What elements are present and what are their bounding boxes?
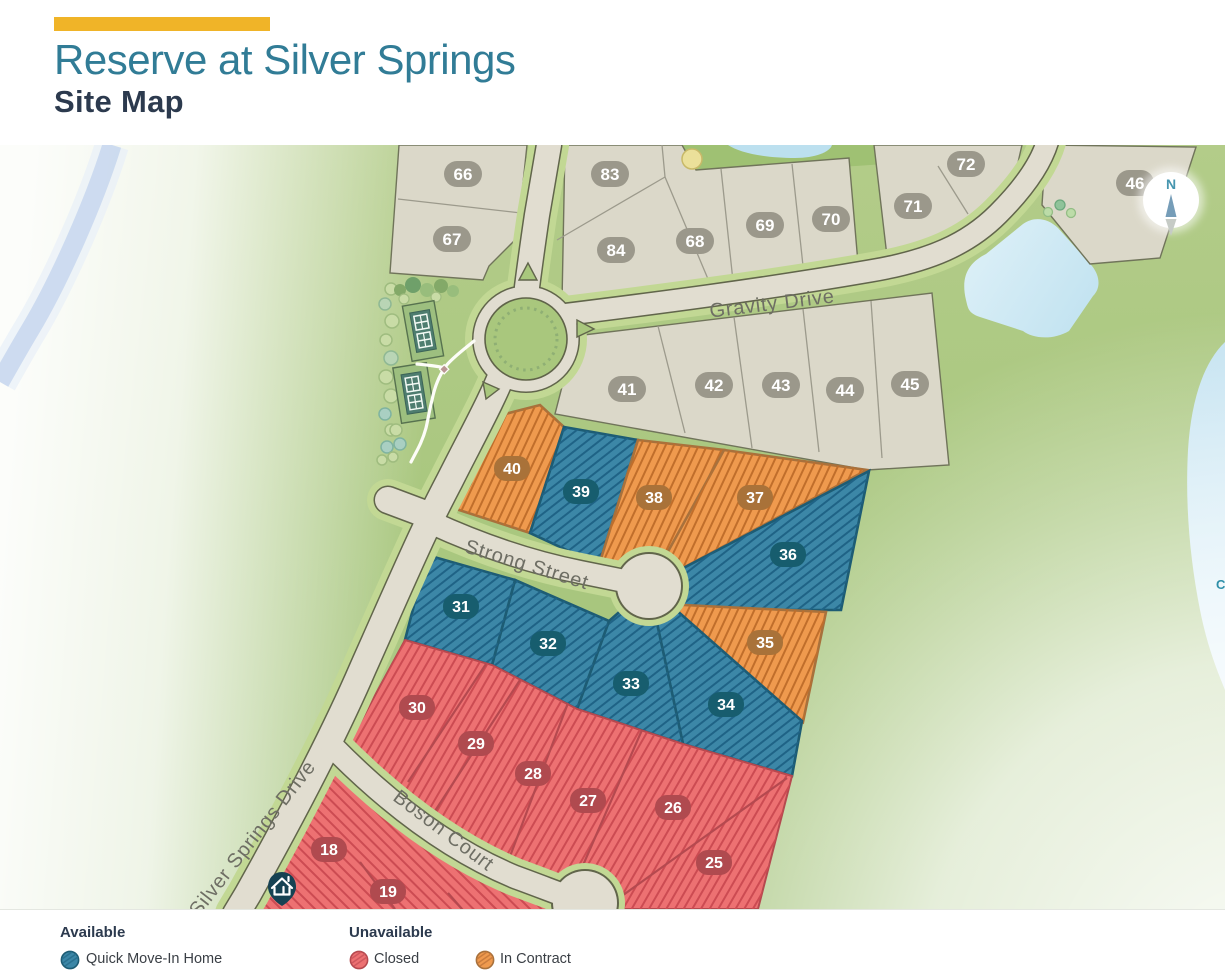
svg-text:45: 45 (901, 375, 920, 394)
svg-text:19: 19 (379, 884, 397, 901)
svg-text:43: 43 (772, 376, 791, 395)
svg-text:72: 72 (957, 155, 976, 174)
svg-text:83: 83 (601, 165, 620, 184)
svg-text:68: 68 (686, 232, 705, 251)
svg-text:N: N (1166, 176, 1176, 192)
svg-text:67: 67 (443, 230, 462, 249)
svg-text:41: 41 (618, 380, 637, 399)
svg-text:31: 31 (452, 599, 470, 616)
svg-text:33: 33 (622, 676, 640, 693)
svg-text:69: 69 (756, 216, 775, 235)
svg-text:40: 40 (503, 461, 521, 478)
svg-text:42: 42 (705, 376, 724, 395)
svg-text:30: 30 (408, 700, 426, 717)
svg-text:39: 39 (572, 484, 590, 501)
svg-text:44: 44 (836, 381, 855, 400)
svg-text:29: 29 (467, 736, 485, 753)
svg-text:32: 32 (539, 636, 557, 653)
svg-text:70: 70 (822, 210, 841, 229)
svg-text:36: 36 (779, 547, 797, 564)
svg-text:28: 28 (524, 766, 542, 783)
svg-text:C: C (1216, 577, 1225, 592)
svg-text:34: 34 (717, 697, 735, 714)
svg-text:84: 84 (607, 241, 626, 260)
svg-text:26: 26 (664, 800, 682, 817)
svg-text:38: 38 (645, 490, 663, 507)
svg-text:18: 18 (320, 842, 338, 859)
svg-text:35: 35 (756, 635, 774, 652)
svg-text:71: 71 (904, 197, 923, 216)
svg-text:66: 66 (454, 165, 473, 184)
svg-text:37: 37 (746, 490, 764, 507)
svg-text:27: 27 (579, 793, 597, 810)
svg-text:25: 25 (705, 855, 723, 872)
